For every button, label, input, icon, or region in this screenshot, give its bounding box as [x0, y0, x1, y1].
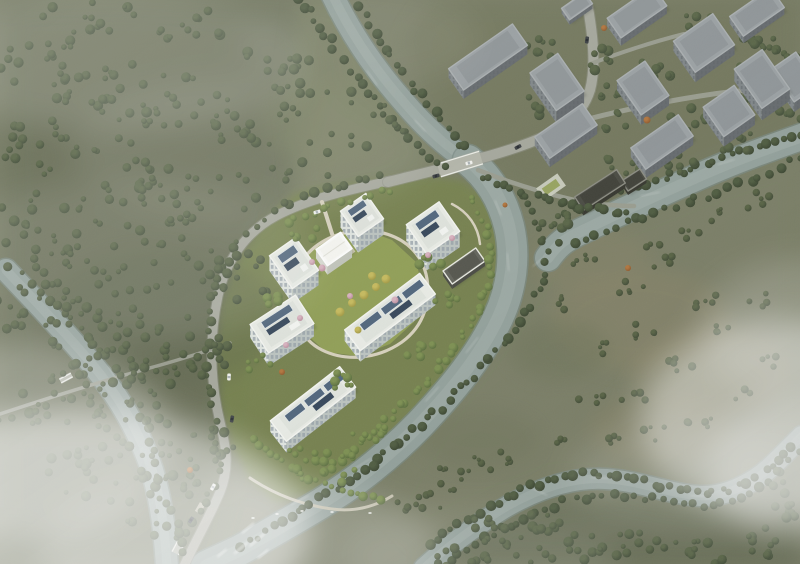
grain-overlay — [0, 0, 800, 564]
aerial-masterplan-rendering — [0, 0, 800, 564]
rendering-canvas — [0, 0, 800, 564]
